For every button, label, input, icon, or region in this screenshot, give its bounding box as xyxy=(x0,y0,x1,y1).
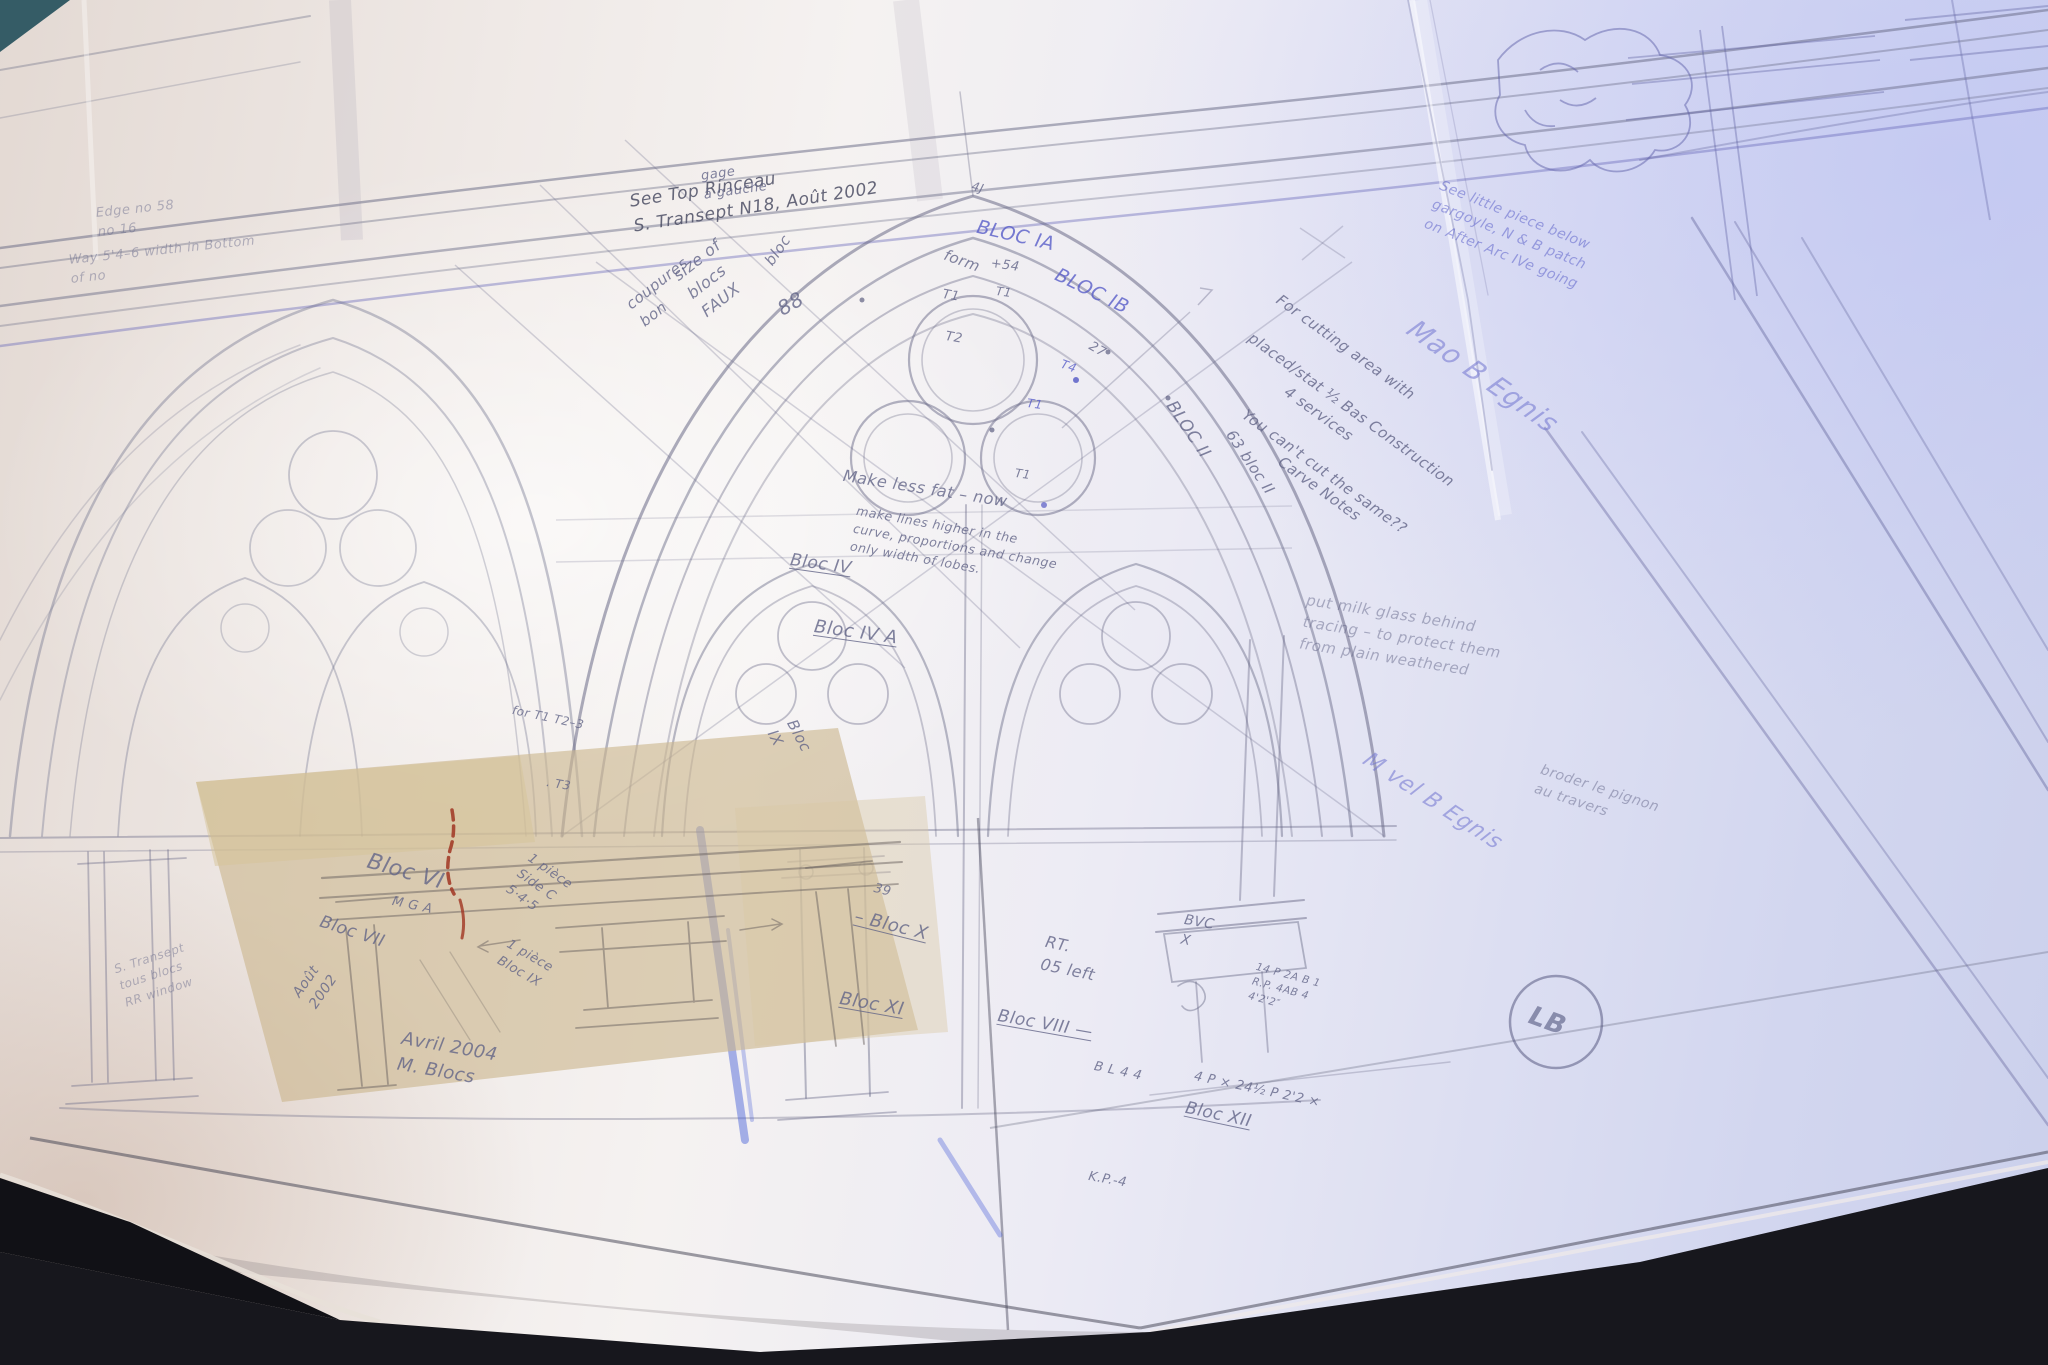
right-pier-lines xyxy=(1408,0,2048,1125)
pencil-linework xyxy=(0,0,2048,1365)
construction-lines xyxy=(455,140,1384,836)
stamp-circle xyxy=(1510,976,1602,1068)
paper-creases xyxy=(84,0,1505,520)
table-edge xyxy=(0,0,2048,1365)
top-right-capital-sketch xyxy=(1495,0,2048,300)
left-arch-linework xyxy=(0,300,582,836)
photograph-of-architectural-drawing: Edge no 58 no 16 Way 5'4–6 width in Bott… xyxy=(0,0,2048,1365)
